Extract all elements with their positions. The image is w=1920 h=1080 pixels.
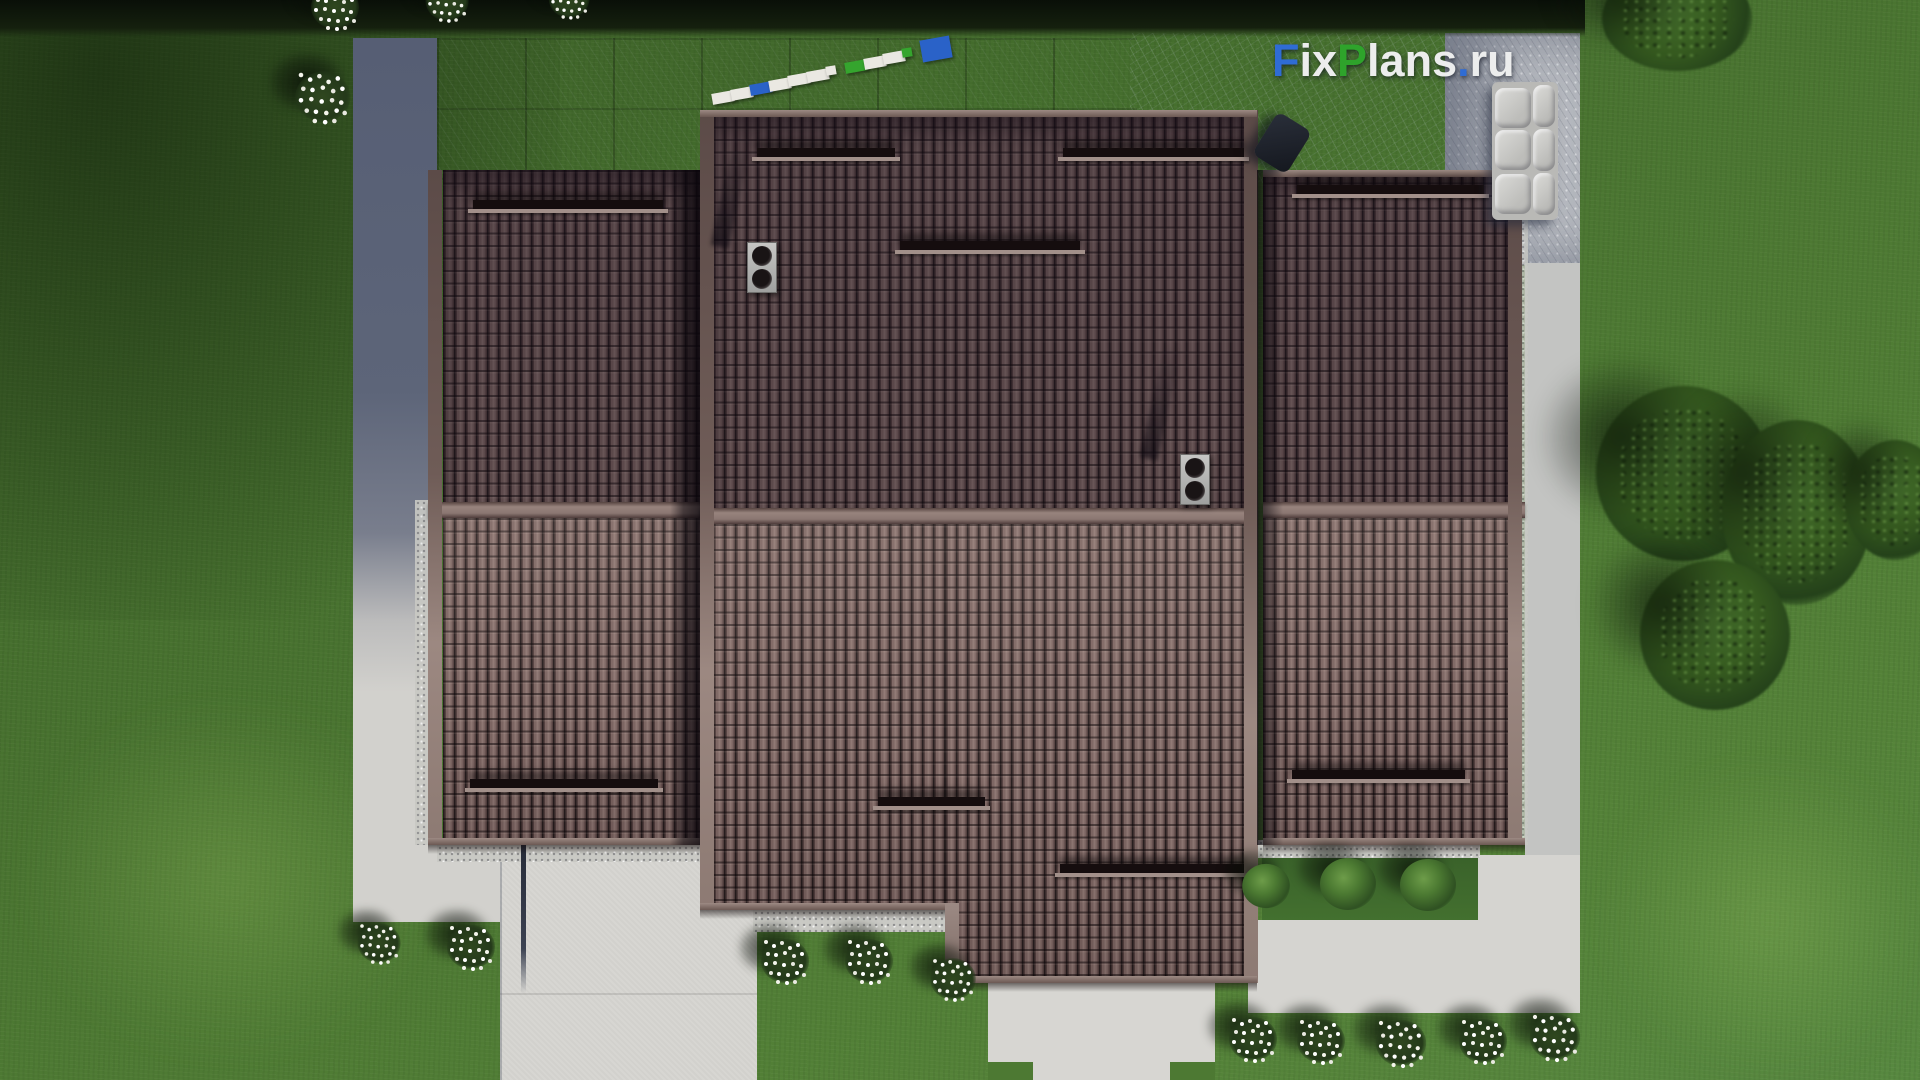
white-flowers	[933, 959, 937, 963]
roof-left-wing-north-slope	[443, 170, 700, 502]
white-flowers	[764, 940, 768, 944]
snow-guard	[900, 241, 1080, 250]
roof-extension-eave	[945, 976, 1257, 983]
white-flowers	[1533, 1015, 1537, 1019]
white-flowers	[1232, 1018, 1236, 1022]
tree	[1640, 560, 1790, 710]
garden-sofa	[1492, 82, 1558, 220]
sofa-back-cushion	[1533, 173, 1555, 215]
chimney-vent	[747, 242, 777, 293]
chimney-vent	[1180, 454, 1210, 505]
watermark-segment: lans	[1367, 38, 1457, 83]
hedge-shadow-top	[0, 0, 1585, 37]
flower-bush	[292, 68, 356, 128]
logo-block	[919, 36, 952, 63]
flower-bush	[1527, 1011, 1586, 1066]
drain-line	[521, 845, 526, 993]
flower-bush	[927, 955, 980, 1004]
sofa-cushion	[1495, 174, 1531, 214]
flower-bush	[1294, 1016, 1350, 1068]
logo-block	[901, 47, 912, 58]
flower-bush	[1456, 1016, 1512, 1068]
roof-valley-shadow	[1257, 170, 1283, 845]
roof-central-fascia-left	[700, 110, 714, 910]
white-flowers	[1462, 1020, 1466, 1024]
snow-guard	[473, 200, 663, 209]
snow-guard	[470, 779, 658, 788]
snow-guard	[757, 148, 895, 157]
watermark-fixplans: FixPlans.ru	[1272, 38, 1515, 83]
roof-central-south-slope	[713, 524, 945, 910]
watermark-segment: ix	[1300, 38, 1338, 83]
flower-bush	[842, 936, 898, 988]
lawn-notch	[988, 1062, 1033, 1080]
roof-central-south-slope-extension	[945, 524, 1257, 976]
sofa-cushion	[1495, 88, 1531, 128]
roof-valley-shadow	[670, 170, 700, 845]
scene-aerial-house-render: FixPlans.ru	[0, 0, 1920, 1080]
sofa-back-cushion	[1533, 129, 1555, 171]
white-flowers	[360, 924, 364, 928]
roof-left-wing-ridge	[428, 502, 700, 518]
flower-bush	[758, 936, 814, 988]
flower-bush	[1373, 1017, 1432, 1072]
shrub	[1318, 856, 1378, 912]
lawn-notch	[1170, 1062, 1215, 1080]
white-flowers	[1379, 1021, 1383, 1025]
snow-guard	[1292, 770, 1465, 779]
flower-bush	[308, 0, 364, 34]
lawn-highlight	[1600, 760, 1920, 1080]
shrub	[1398, 857, 1458, 913]
roof-left-wing-fascia	[428, 170, 442, 845]
flower-bush	[423, 0, 473, 25]
flower-bush	[444, 922, 500, 974]
sofa-back-cushion	[1533, 85, 1555, 127]
pavement-right-strip	[1525, 263, 1580, 863]
watermark-segment: P	[1337, 38, 1367, 83]
roof-left-wing-eave	[428, 838, 700, 845]
sofa-cushion	[1495, 130, 1531, 170]
logo-blocks	[712, 40, 972, 112]
flower-bush	[355, 921, 405, 968]
roof-right-wing-top-eave	[1263, 170, 1525, 177]
roof-right-wing-fascia	[1508, 170, 1522, 845]
watermark-segment: ru	[1470, 38, 1515, 83]
white-flowers	[450, 926, 454, 930]
snow-guard	[1063, 148, 1244, 157]
roof-right-wing-south-slope	[1263, 518, 1508, 838]
white-flowers	[848, 940, 852, 944]
roof-right-wing-north-slope	[1263, 170, 1508, 502]
watermark-segment: F	[1272, 38, 1300, 83]
roof-central-eave	[700, 903, 945, 910]
watermark-segment: .	[1457, 38, 1470, 83]
flower-bush	[546, 0, 594, 22]
eave-shadow	[700, 910, 945, 919]
terrace	[1478, 855, 1580, 925]
roof-right-wing-ridge	[1263, 502, 1525, 518]
shrub	[1241, 862, 1292, 910]
eave-shadow	[428, 845, 700, 854]
snow-guard	[1060, 864, 1244, 873]
snow-guard	[878, 797, 985, 806]
roof-central-ridge	[700, 508, 1257, 524]
logo-block	[825, 65, 836, 76]
white-flowers	[299, 73, 304, 78]
eave-shadow	[945, 983, 1257, 992]
white-flowers	[1300, 1020, 1304, 1024]
snow-guard	[1297, 185, 1484, 194]
roof-central-north-slope	[713, 114, 1244, 508]
